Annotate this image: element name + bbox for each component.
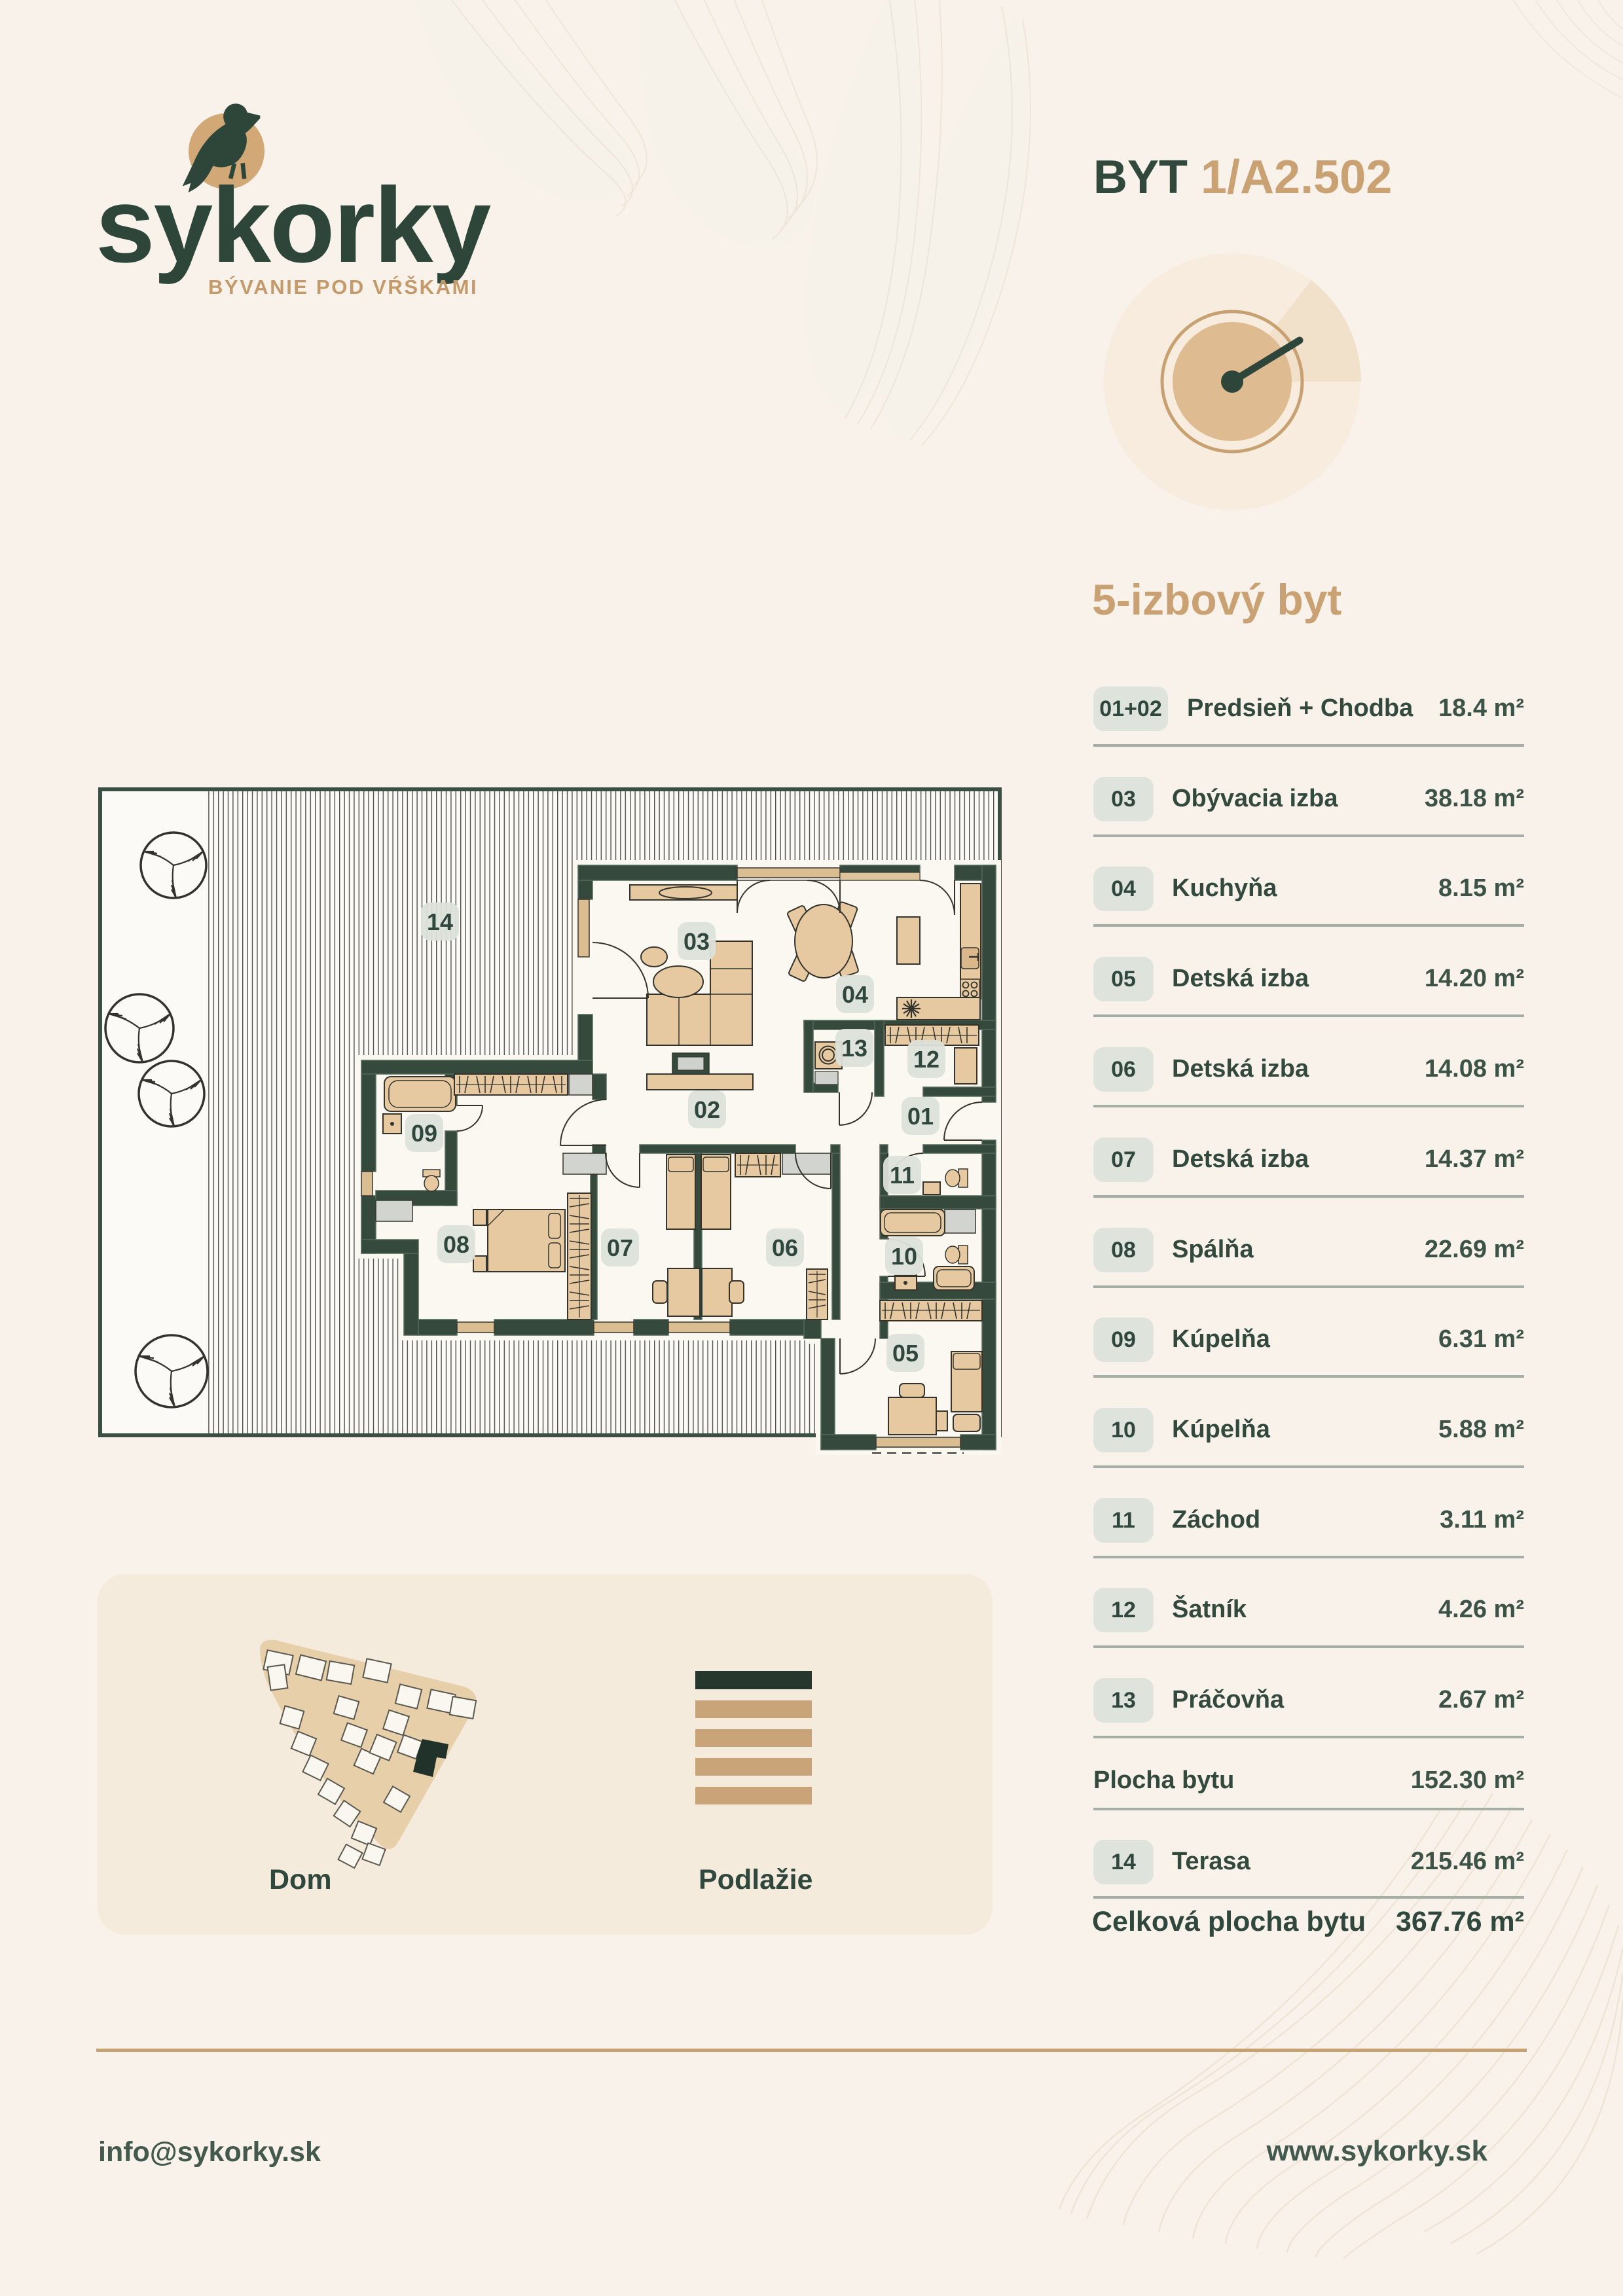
svg-text:02: 02 (694, 1096, 720, 1123)
svg-text:12: 12 (913, 1046, 939, 1073)
svg-text:09: 09 (411, 1120, 437, 1147)
svg-text:14: 14 (427, 908, 453, 935)
svg-text:Podlažie: Podlažie (699, 1864, 812, 1895)
svg-text:07: 07 (607, 1234, 633, 1261)
svg-text:01: 01 (907, 1103, 934, 1130)
svg-text:10: 10 (891, 1243, 917, 1270)
svg-text:05: 05 (892, 1340, 919, 1367)
svg-text:11: 11 (890, 1162, 915, 1189)
svg-text:06: 06 (772, 1234, 798, 1261)
svg-text:13: 13 (841, 1035, 867, 1062)
svg-text:08: 08 (443, 1231, 469, 1258)
svg-text:04: 04 (842, 981, 868, 1008)
svg-text:03: 03 (684, 928, 710, 955)
